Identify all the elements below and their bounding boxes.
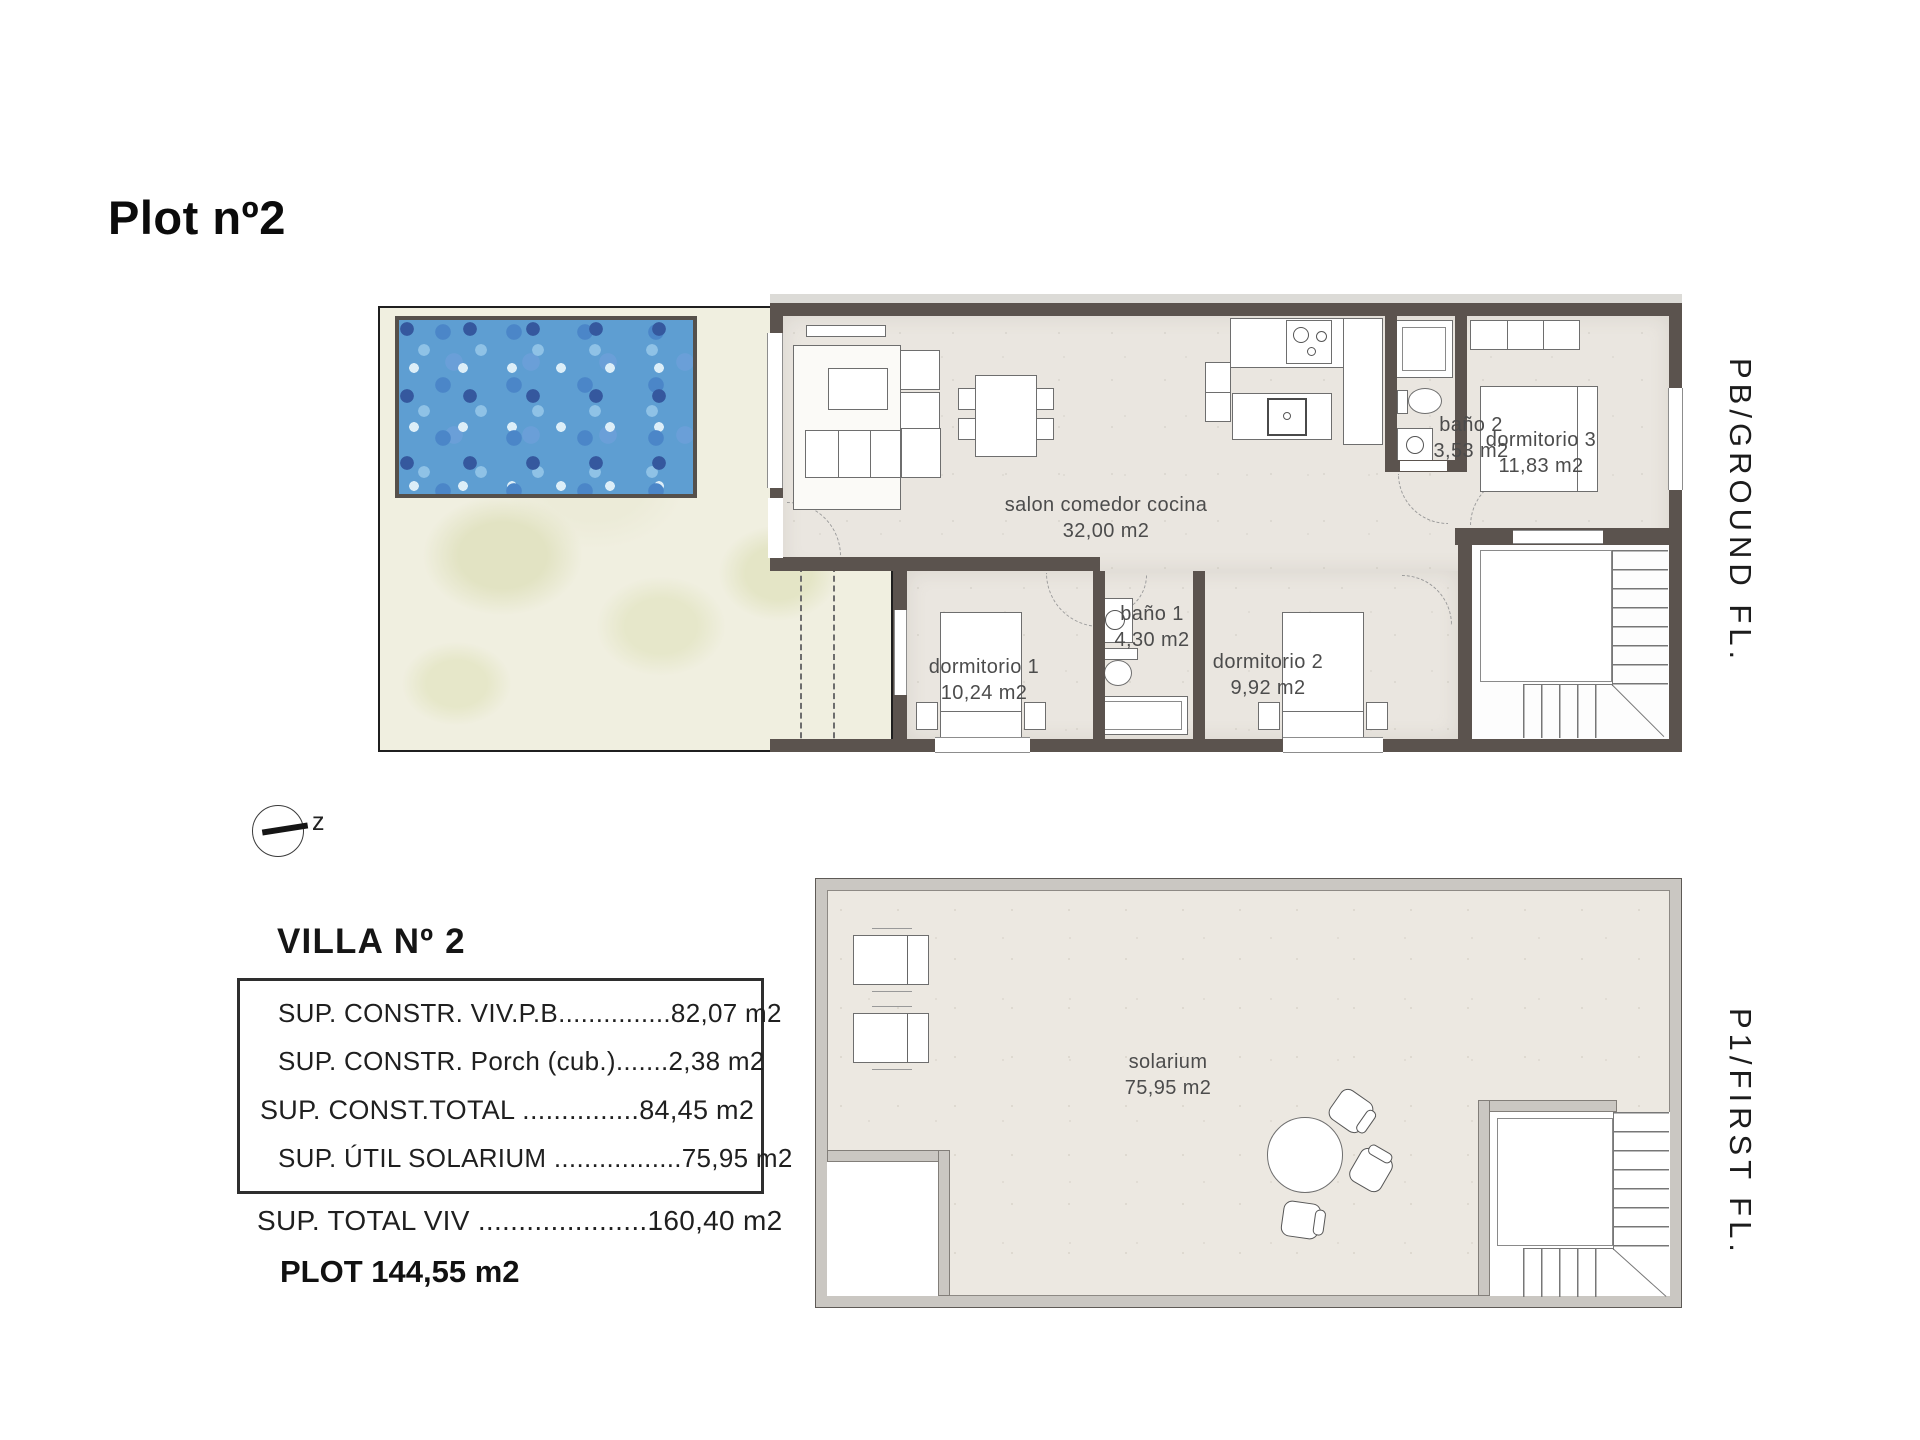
sun-lounger — [853, 935, 929, 985]
shower-tray — [1402, 327, 1446, 371]
sink-drain — [1283, 412, 1291, 420]
area-summary-box: SUP. CONSTR. VIV.P.B...............82,07… — [237, 978, 764, 1194]
page-title: Plot nº2 — [108, 190, 286, 245]
toilet-bowl — [1104, 660, 1132, 686]
porch-dashed-line — [833, 566, 835, 748]
summary-row: SUP. CONST.TOTAL ...............84,45 m2 — [240, 1095, 761, 1126]
dining-table — [975, 375, 1037, 457]
stair-treads — [1612, 550, 1668, 686]
bedroom1-window — [935, 737, 1030, 753]
room-label-solarium: solarium 75,95 m2 — [1125, 1049, 1212, 1101]
room-name: dormitorio 1 — [929, 654, 1039, 680]
nightstand — [1366, 702, 1388, 730]
entry-door-opening — [768, 498, 783, 558]
stair-window — [1513, 530, 1603, 544]
void-parapet-top — [827, 1150, 950, 1162]
toilet-tank — [1397, 390, 1408, 414]
ground-floor-side-label: PB/GROUND FL. — [1722, 358, 1758, 664]
room-name: salon comedor cocina — [1005, 492, 1208, 518]
bath2-left-wall — [1385, 316, 1397, 472]
room-label-bedroom2: dormitorio 2 9,92 m2 — [1213, 649, 1323, 701]
stove — [1286, 320, 1332, 364]
patio-chair — [1280, 1200, 1323, 1241]
void-over-porch — [827, 1162, 938, 1296]
swimming-pool — [395, 316, 697, 498]
first-floor-side-label: P1/FIRST FL. — [1722, 1008, 1758, 1257]
wardrobe — [1470, 320, 1580, 350]
shower-tray — [1103, 701, 1182, 730]
room-label-salon: salon comedor cocina 32,00 m2 — [1005, 492, 1208, 544]
room-name: dormitorio 3 — [1486, 427, 1596, 453]
roof-shadow-strip — [770, 294, 1682, 303]
summary-row: SUP. ÚTIL SOLARIUM .................75,9… — [240, 1143, 761, 1174]
bedroom2-window — [1283, 737, 1383, 753]
patio-table — [1267, 1117, 1343, 1193]
stair-landing — [1497, 1118, 1613, 1246]
room-name: solarium — [1125, 1049, 1212, 1075]
kitchen-cabinet — [1205, 362, 1231, 422]
sofa — [805, 430, 901, 478]
room-area: 9,92 m2 — [1213, 675, 1323, 701]
room-area: 75,95 m2 — [1125, 1075, 1212, 1101]
stair-treads — [1523, 1248, 1613, 1297]
exterior-wall-bottom — [770, 739, 1682, 752]
bath1-right-wall — [1193, 571, 1205, 739]
salon-window — [767, 333, 783, 488]
room-area: 11,83 m2 — [1486, 453, 1596, 479]
room-area: 32,00 m2 — [1005, 518, 1208, 544]
coffee-table — [828, 368, 888, 410]
room-name: dormitorio 2 — [1213, 649, 1323, 675]
summary-total-row: SUP. TOTAL VIV .....................160,… — [257, 1205, 783, 1237]
burner — [1307, 347, 1316, 356]
washbasin-bowl — [1406, 436, 1424, 454]
stair-wall-top — [1478, 1100, 1617, 1112]
stair-landing — [1480, 550, 1612, 682]
bath1-left-wall — [1093, 571, 1105, 739]
stair-treads — [1613, 1112, 1669, 1250]
kitchen-counter-right — [1343, 318, 1383, 445]
floor-plan-sheet: Plot nº2 PB/GROUND FL. P1/FIRST FL. z VI… — [0, 0, 1920, 1440]
bedroom2-right-wall — [1458, 545, 1472, 739]
compass-label: z — [312, 808, 325, 837]
bedroom3-window — [1668, 388, 1683, 490]
sofa-chaise — [901, 428, 941, 478]
tv-bench — [806, 325, 886, 337]
room-label-bedroom1: dormitorio 1 10,24 m2 — [929, 654, 1039, 706]
void-parapet-right — [938, 1150, 950, 1296]
room-area: 4,30 m2 — [1114, 627, 1189, 653]
burner — [1316, 331, 1327, 342]
armchair — [900, 350, 940, 390]
room-label-bath1: baño 1 4,30 m2 — [1114, 601, 1189, 653]
summary-plot-row: PLOT 144,55 m2 — [280, 1254, 520, 1290]
sun-lounger — [853, 1013, 929, 1063]
salon-bottom-wall — [783, 557, 1100, 571]
burner — [1293, 327, 1309, 343]
stair-wall-left — [1478, 1100, 1490, 1296]
summary-row: SUP. CONSTR. VIV.P.B...............82,07… — [240, 998, 761, 1029]
toilet-bowl — [1408, 388, 1442, 414]
room-label-bedroom3: dormitorio 3 11,83 m2 — [1486, 427, 1596, 479]
summary-row: SUP. CONSTR. Porch (cub.).......2,38 m2 — [240, 1046, 761, 1077]
exterior-wall-top — [770, 303, 1682, 316]
nightstand — [916, 702, 938, 730]
room-area: 10,24 m2 — [929, 680, 1039, 706]
armchair — [900, 392, 940, 432]
porch-window — [894, 610, 907, 695]
villa-heading: VILLA Nº 2 — [277, 922, 466, 962]
nightstand — [1024, 702, 1046, 730]
porch-dashed-line — [800, 566, 802, 748]
room-name: baño 1 — [1114, 601, 1189, 627]
stair-treads — [1523, 684, 1612, 738]
nightstand — [1258, 702, 1280, 730]
